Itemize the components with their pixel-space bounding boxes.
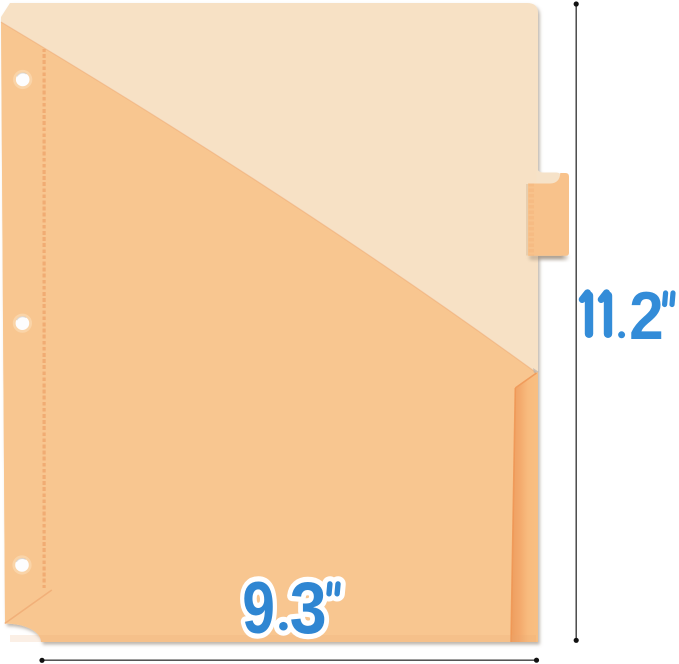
svg-text:9: 9: [242, 568, 275, 649]
svg-text:3: 3: [290, 568, 327, 649]
svg-text:2: 2: [629, 278, 664, 354]
